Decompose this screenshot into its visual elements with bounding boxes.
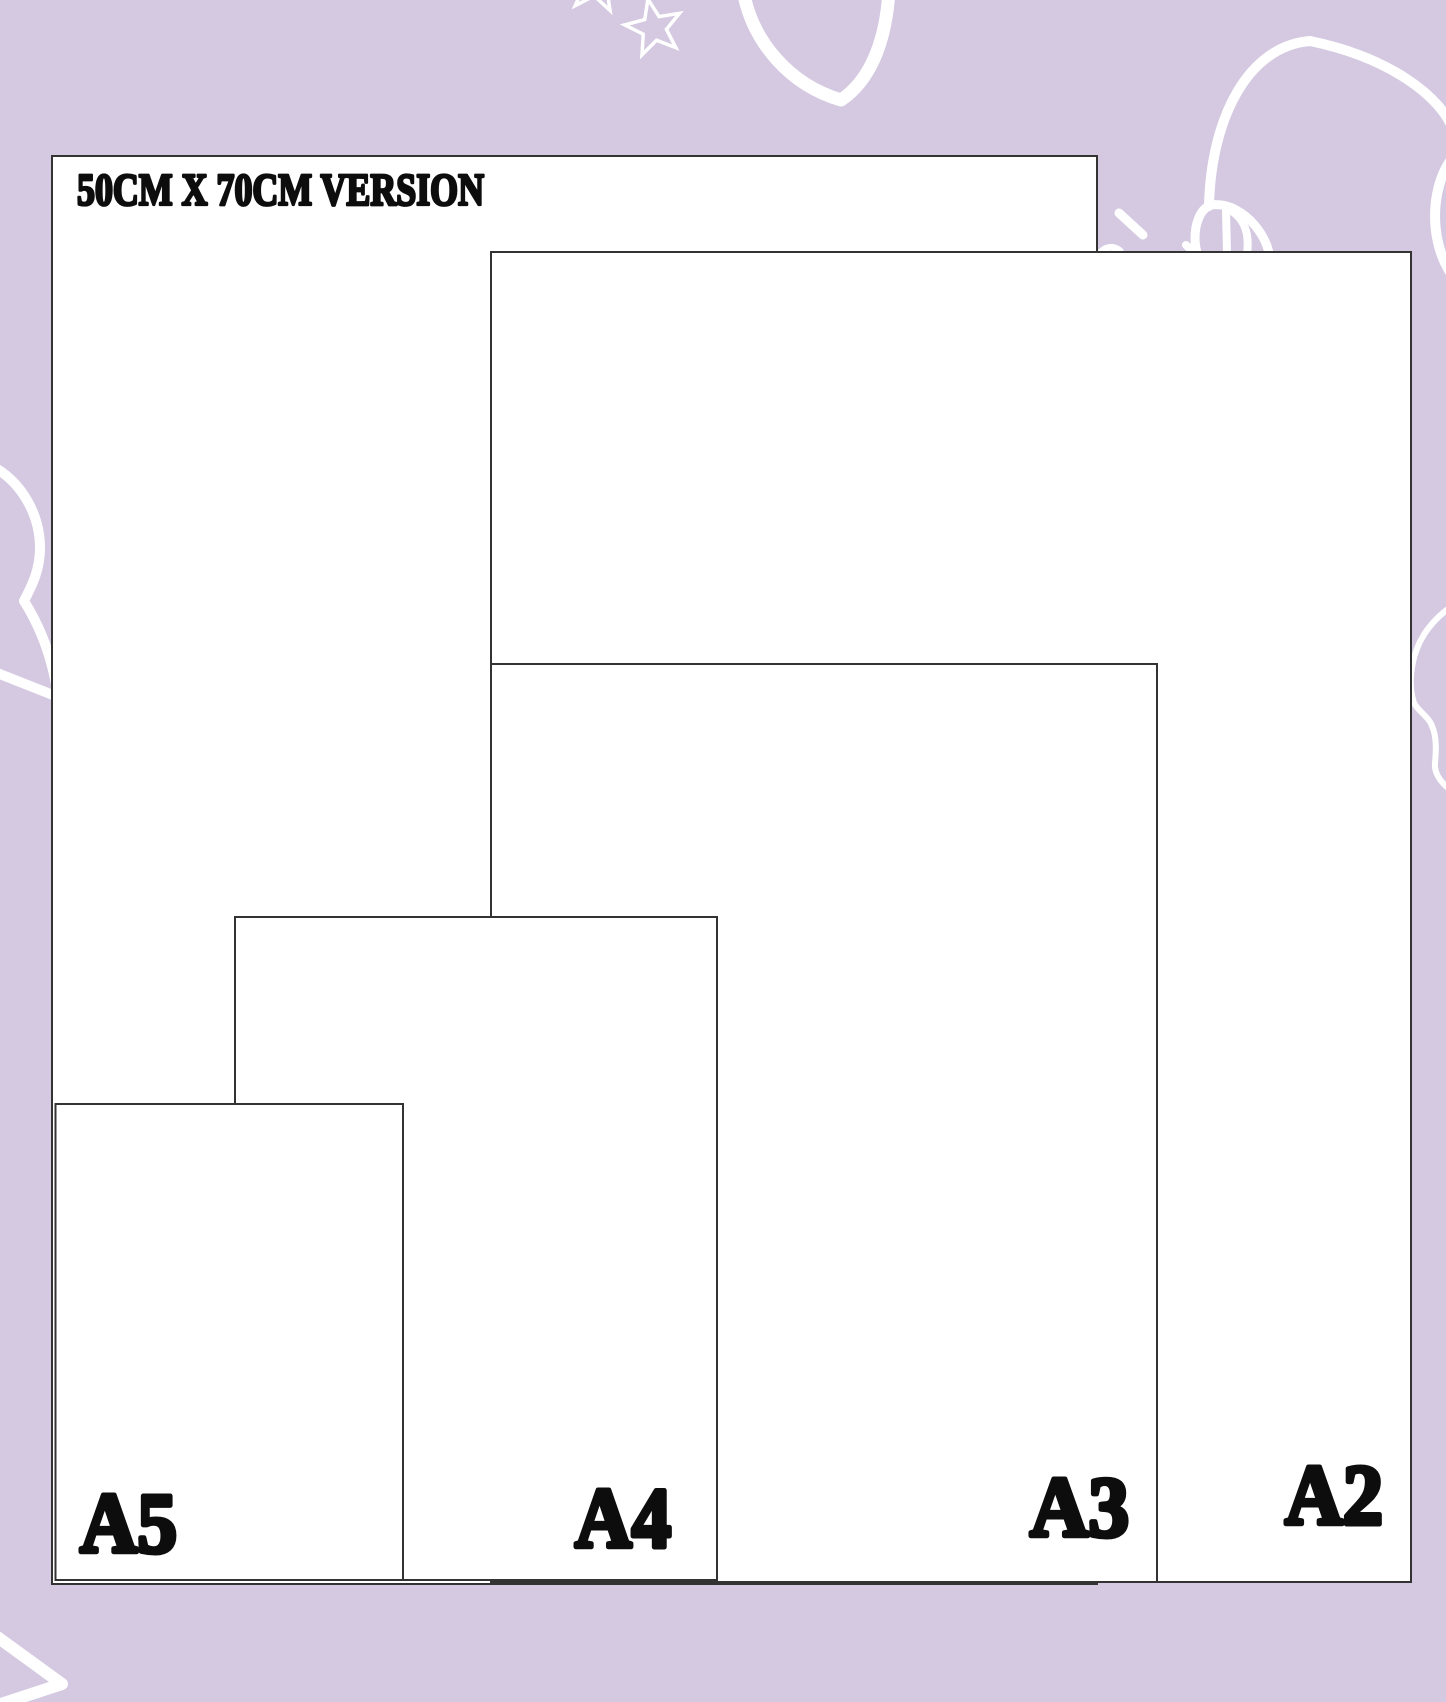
svg-text:A2: A2 — [1285, 1447, 1383, 1543]
svg-text:50CM X 70CM VERSION: 50CM X 70CM VERSION — [77, 165, 484, 215]
svg-text:A3: A3 — [1030, 1459, 1129, 1555]
svg-text:A4: A4 — [575, 1470, 671, 1566]
svg-text:A5: A5 — [80, 1475, 177, 1571]
